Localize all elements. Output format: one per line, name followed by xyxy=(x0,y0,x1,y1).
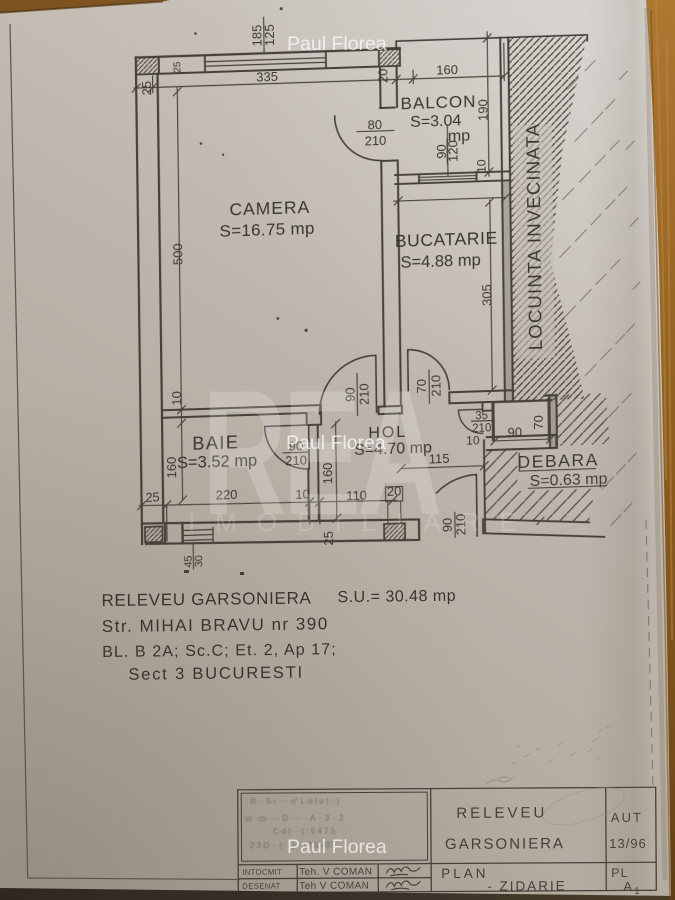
svg-text:Teh V COMAN: Teh V COMAN xyxy=(299,880,369,891)
svg-text:70: 70 xyxy=(531,415,546,430)
svg-text:BUCATARIE: BUCATARIE xyxy=(395,228,498,251)
svg-text:90: 90 xyxy=(508,424,523,439)
svg-text:25: 25 xyxy=(172,61,183,73)
svg-text:Paul Florea: Paul Florea xyxy=(287,836,387,858)
svg-text:BL. B 2A; Sc.C; Et. 2, Ap 17;: BL. B 2A; Sc.C; Et. 2, Ap 17; xyxy=(102,641,337,661)
svg-text:25: 25 xyxy=(139,81,154,96)
svg-text:C·d (····) : 5 4 7 5 ·: C·d (····) : 5 4 7 5 · xyxy=(273,827,340,836)
svg-text:500: 500 xyxy=(170,243,185,265)
svg-text:CAMERA: CAMERA xyxy=(229,197,310,220)
svg-text:125: 125 xyxy=(262,24,277,46)
svg-text:BALCON: BALCON xyxy=(400,92,476,113)
svg-text:190: 190 xyxy=(475,99,490,121)
svg-text:Paul Florea: Paul Florea xyxy=(286,432,386,454)
svg-text:: R ·· S·i····· n" L·d·l·u: : R ·· S·i····· n" L·d·l·u (···) xyxy=(246,797,340,807)
svg-text:Str. MIHAI BRAVU nr 390: Str. MIHAI BRAVU nr 390 xyxy=(102,614,329,636)
svg-text:RELEVEU GARSONIERA: RELEVEU GARSONIERA xyxy=(101,588,311,610)
svg-text:S=16.75 mp: S=16.75 mp xyxy=(219,219,314,241)
svg-text:Sect 3 BUCURESTI: Sect 3 BUCURESTI xyxy=(128,664,304,684)
svg-text:Paul Florea: Paul Florea xyxy=(287,33,387,55)
svg-text:IMOBILIARE: IMOBILIARE xyxy=(188,507,537,537)
svg-text:160: 160 xyxy=(436,62,458,78)
svg-text:RELEVEU: RELEVEU xyxy=(456,804,547,822)
svg-text:120: 120 xyxy=(446,140,461,162)
svg-text:INTOCMIT: INTOCMIT xyxy=(242,868,282,877)
svg-text:10: 10 xyxy=(169,391,184,406)
svg-text:PLAN: PLAN xyxy=(441,866,488,881)
svg-text:S.U.= 30.48 mp: S.U.= 30.48 mp xyxy=(337,588,456,606)
svg-text:10: 10 xyxy=(474,159,488,173)
svg-text:30: 30 xyxy=(193,555,205,568)
svg-text:335: 335 xyxy=(256,69,278,85)
svg-text:80: 80 xyxy=(367,117,382,132)
svg-text:DESENAT: DESENAT xyxy=(242,882,280,891)
svg-text:160: 160 xyxy=(164,456,179,478)
svg-text:S=4.88 mp: S=4.88 mp xyxy=(400,251,480,272)
svg-text:305: 305 xyxy=(479,284,494,306)
svg-text:LOCUINTA INVECINATA: LOCUINTA INVECINATA xyxy=(522,122,546,350)
svg-text:- ZIDARIE: - ZIDARIE xyxy=(487,878,567,893)
svg-text:25: 25 xyxy=(145,489,160,504)
svg-text:210: 210 xyxy=(365,133,387,149)
svg-text:GARSONIERA: GARSONIERA xyxy=(445,835,565,853)
svg-text:10: 10 xyxy=(466,433,480,447)
svg-text:Teh. V COMAN: Teh. V COMAN xyxy=(299,866,372,877)
svg-text:20: 20 xyxy=(376,68,391,83)
svg-text:35: 35 xyxy=(475,410,488,422)
svg-text:st· ·cs····· D ···· ·· A ·· 3: st· ·cs····· D ···· ·· A ·· 3 ·· 2 xyxy=(245,814,344,824)
